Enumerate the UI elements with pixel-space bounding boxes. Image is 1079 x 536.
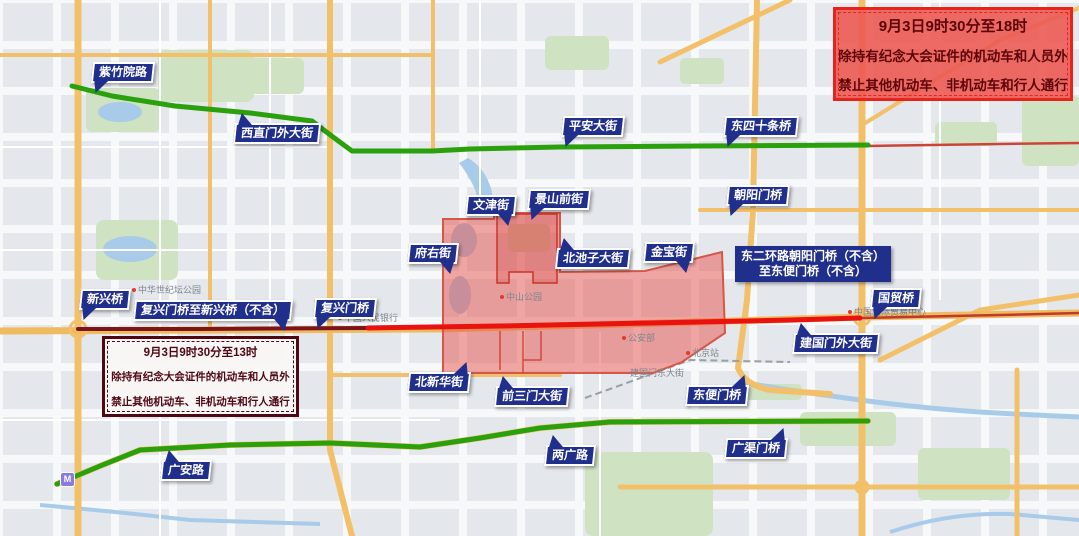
banner-label: 复兴门桥 xyxy=(320,301,369,315)
banner-guangqumen-br: 广渠门桥 xyxy=(724,438,788,459)
map-label-shijitan: 中华世纪坛公园 xyxy=(132,283,201,296)
banner-jianguomenwai: 建国门外大街 xyxy=(792,333,880,354)
banner-label: 广渠门桥 xyxy=(731,441,780,455)
banner-label: 景山前街 xyxy=(534,192,583,206)
banner-jinbao-st: 金宝街 xyxy=(643,242,695,263)
banner-label: 文津街 xyxy=(472,198,509,212)
banner-label: 建国门外大街 xyxy=(799,336,872,350)
poi-dot xyxy=(622,336,626,340)
map-label-beijingstation: 北京站 xyxy=(686,346,719,359)
notice-time-range: 9月3日9时30分至13时 xyxy=(105,344,296,360)
banner-label: 新兴桥 xyxy=(86,292,123,306)
banner-dongbianmen-br: 东便门桥 xyxy=(685,385,749,406)
banner-label: 前三门大街 xyxy=(501,389,562,403)
map-label-text: 北京站 xyxy=(692,348,719,358)
map-label-text: 中山公园 xyxy=(506,292,542,302)
banner-label: 金宝街 xyxy=(650,245,687,259)
poi-dot xyxy=(132,288,136,292)
banner-label: 国贸桥 xyxy=(877,291,914,305)
banner-guomao-br: 国贸桥 xyxy=(870,288,922,309)
banner-qiansanmen-ave: 前三门大街 xyxy=(494,386,570,407)
banner-label: 北池子大街 xyxy=(562,251,623,265)
banner-label: 府右街 xyxy=(414,246,451,260)
banner-label: 西直门外大街 xyxy=(240,126,313,140)
banner-dongsishitiao: 东四十条桥 xyxy=(723,116,799,137)
notice-time-range: 9月3日9时30分至18时 xyxy=(836,15,1070,36)
map-label-text: 建国门东大街 xyxy=(630,368,684,378)
poi-dot xyxy=(500,295,504,299)
map-label-jianguomendong: 建国门东大街 xyxy=(630,366,684,379)
banner-wenjin-st: 文津街 xyxy=(465,195,517,216)
dark-red-route-west xyxy=(78,328,368,329)
notice-box-0930-to-1800: 9月3日9时30分至18时 除持有纪念大会证件的机动车和人员外 禁止其他机动车、… xyxy=(833,7,1073,101)
east-second-ring-note: 东二环路朝阳门桥（不含） 至东便门桥（不含） xyxy=(735,246,891,282)
banner-label: 广安路 xyxy=(167,463,204,477)
map-label-zhongshanpark: 中山公园 xyxy=(500,290,542,303)
banner-zizhuyuan-road: 紫竹院路 xyxy=(91,62,155,83)
map-label-text: 中华世纪坛公园 xyxy=(138,285,201,295)
forbidden-city-overlay xyxy=(497,214,557,283)
banner-beixinhua-st: 北新华街 xyxy=(407,372,471,393)
banner-liangguang-rd: 两广路 xyxy=(544,445,596,466)
banner-chaoyangmen-br: 朝阳门桥 xyxy=(726,185,790,206)
notice-prohibition: 禁止其他机动车、非机动车和行人通行 xyxy=(105,394,296,409)
banner-label: 北新华街 xyxy=(414,375,463,389)
traffic-restriction-map: 中华世纪坛公园 中国人民银行 中山公园 公安部 北京站 建国门东大街 中国国际贸… xyxy=(0,0,1079,536)
notice-prohibition: 禁止其他机动车、非机动车和行人通行 xyxy=(836,74,1070,94)
map-label-text: 公安部 xyxy=(628,333,655,343)
banner-fuyou-st: 府右街 xyxy=(407,243,459,264)
metro-m-icon: M xyxy=(60,472,75,487)
notice-exception: 除持有纪念大会证件的机动车和人员外 xyxy=(105,369,296,384)
ring-note-line1: 东二环路朝阳门桥（不含） xyxy=(741,249,885,264)
notice-box-0930-to-1300: 9月3日9时30分至13时 除持有纪念大会证件的机动车和人员外 禁止其他机动车、… xyxy=(102,336,299,417)
ring-note-line2: 至东便门桥（不含） xyxy=(741,264,885,279)
banner-pingan-ave: 平安大街 xyxy=(561,116,625,137)
banner-label: 东便门桥 xyxy=(692,388,741,402)
banner-label: 紫竹院路 xyxy=(98,65,147,79)
poi-dot xyxy=(686,351,690,355)
banner-label: 复兴门桥至新兴桥（不含） xyxy=(140,303,285,317)
banner-jingshanqian-st: 景山前街 xyxy=(527,189,591,210)
banner-label: 东四十条桥 xyxy=(730,119,791,133)
banner-fuxingmen-br: 复兴门桥 xyxy=(313,298,377,319)
banner-label: 朝阳门桥 xyxy=(733,188,782,202)
map-label-gonganbu: 公安部 xyxy=(622,331,655,344)
banner-xinxing-br: 新兴桥 xyxy=(79,289,131,310)
banner-guangan-rd: 广安路 xyxy=(160,460,212,481)
banner-fuxing-to-xinxing: 复兴门桥至新兴桥（不含） xyxy=(133,300,293,321)
banner-xizhimenwai-st: 西直门外大街 xyxy=(233,123,321,144)
banner-label: 平安大街 xyxy=(568,119,617,133)
notice-exception: 除持有纪念大会证件的机动车和人员外 xyxy=(836,45,1070,65)
poi-dot xyxy=(848,310,852,314)
banner-beichizi-st: 北池子大街 xyxy=(555,248,631,269)
banner-label: 两广路 xyxy=(551,448,588,462)
